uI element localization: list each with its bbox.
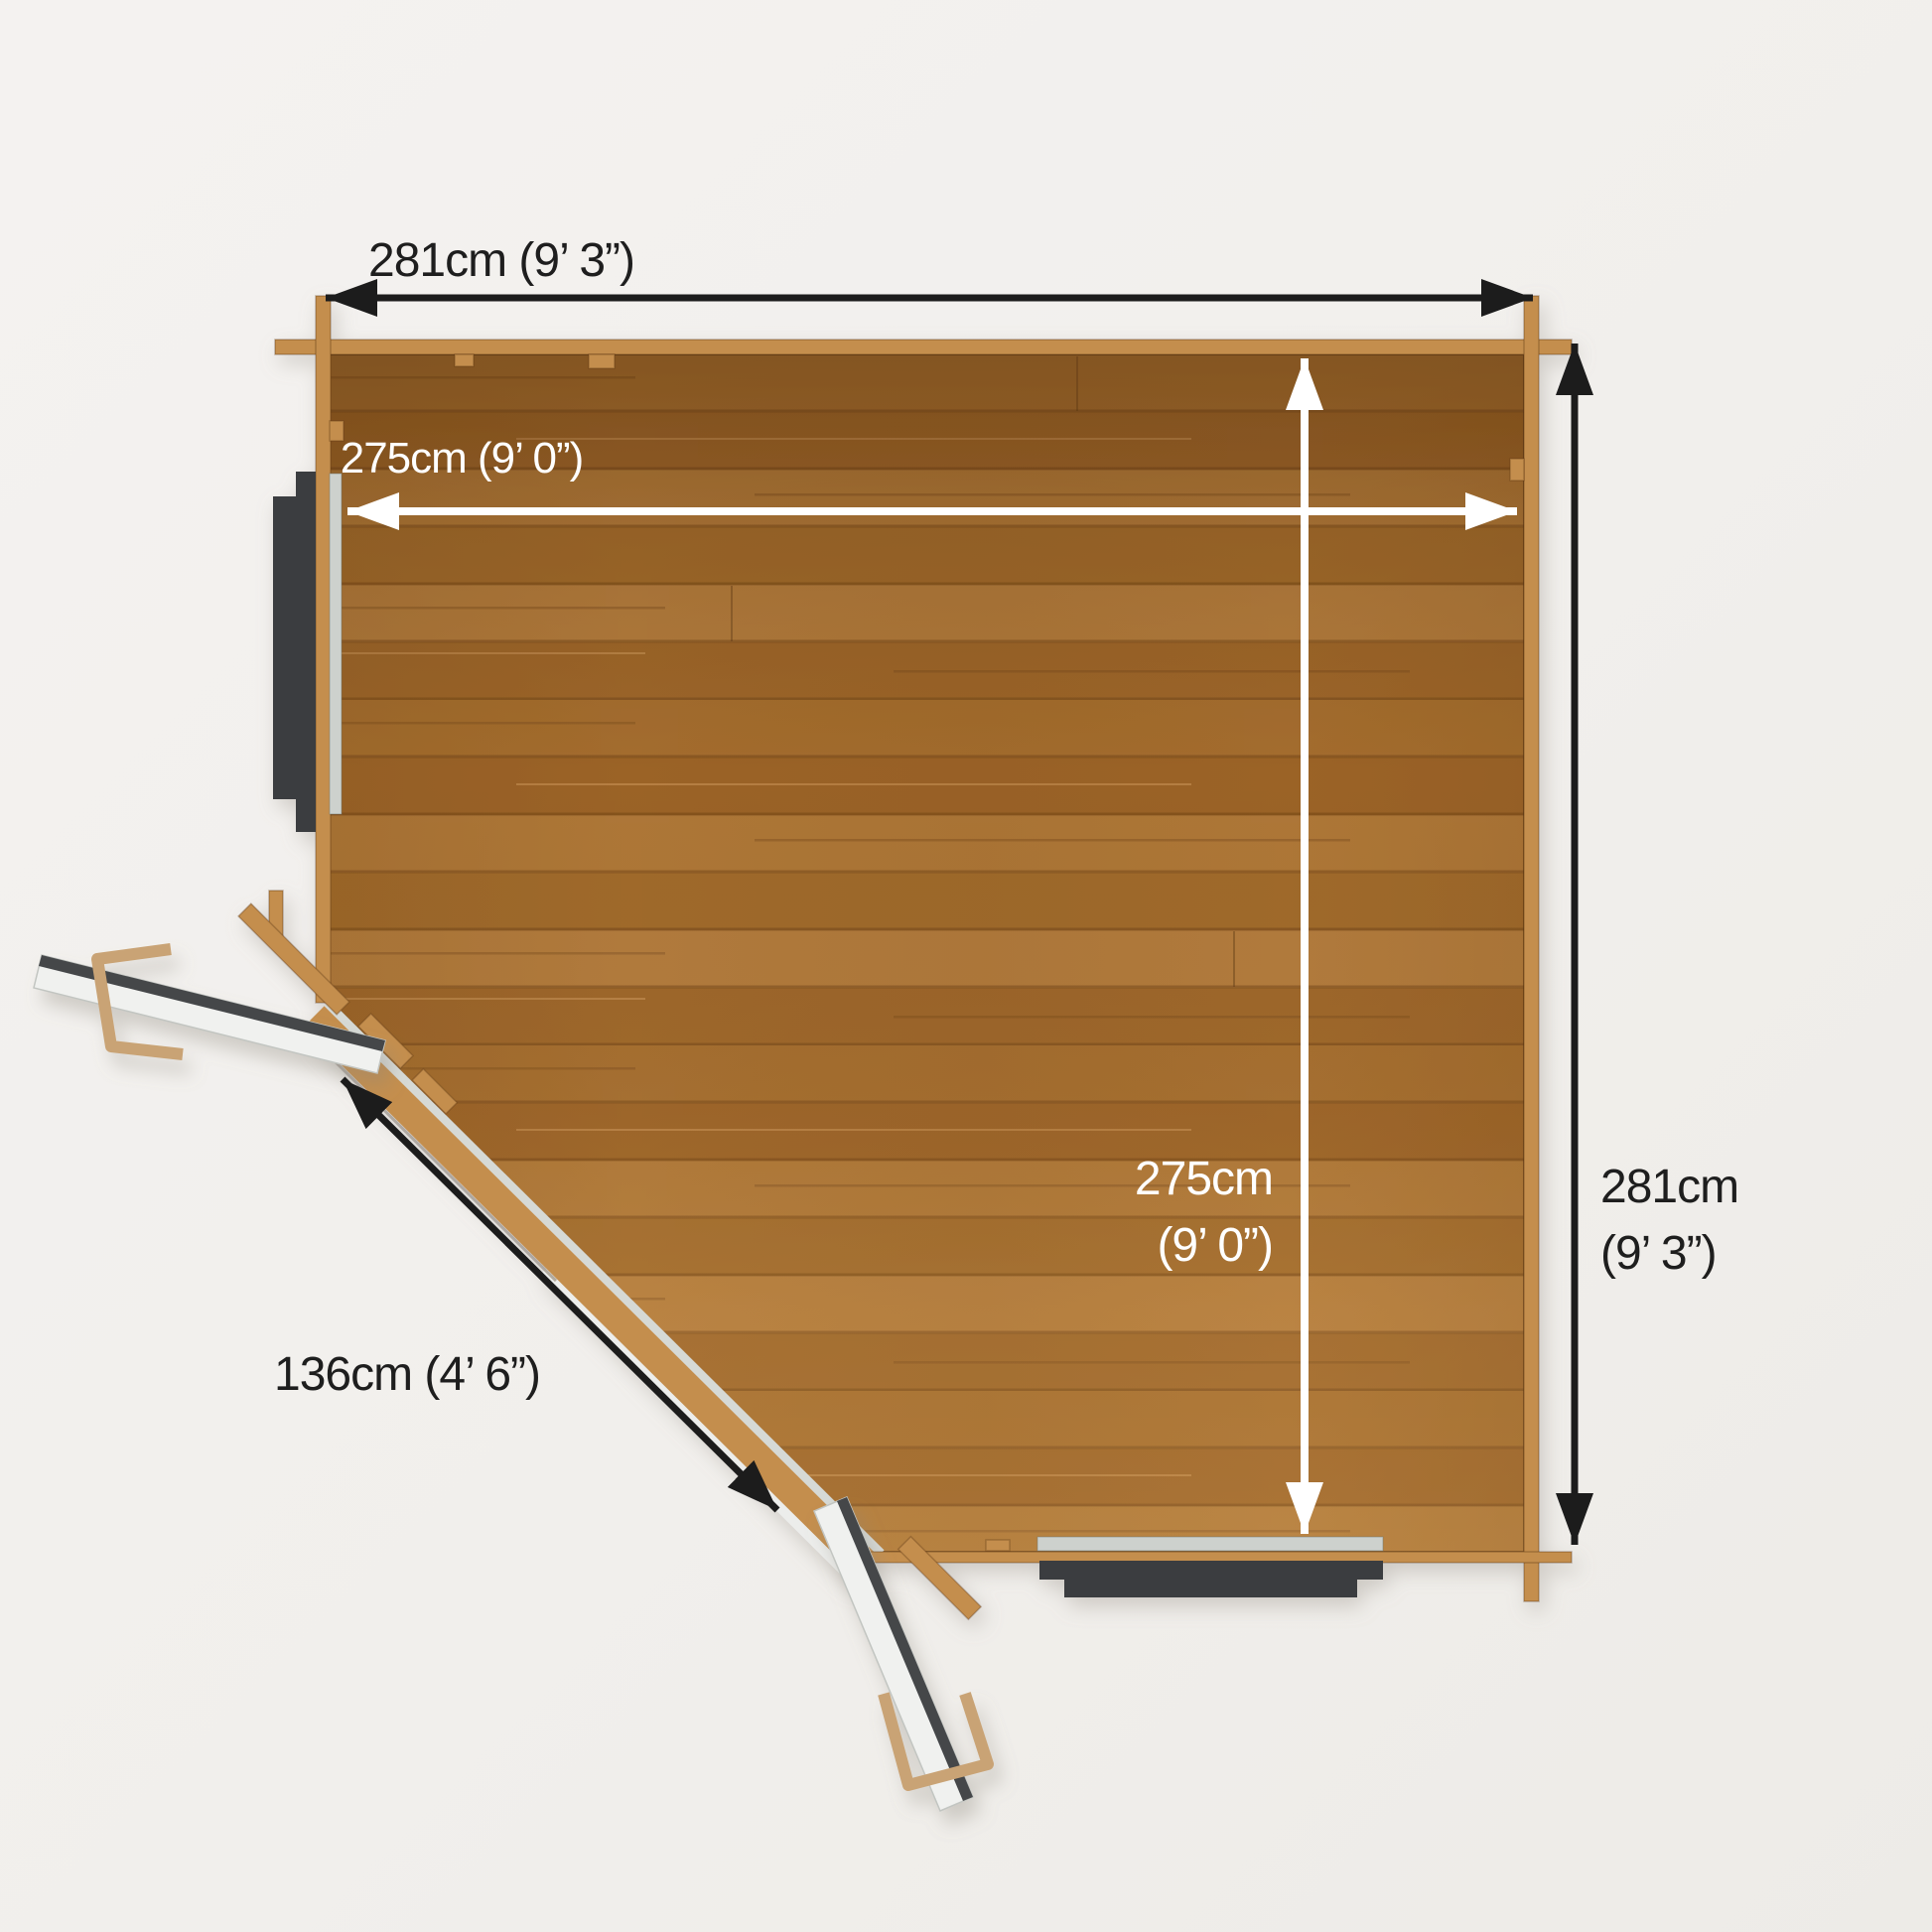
dim-label-inner-depth-line1: 275cm [1135,1153,1273,1205]
left-window-sill [330,474,342,814]
dim-label-outer-depth-line2: (9’ 3”) [1600,1227,1717,1280]
left-window-frame [296,472,316,832]
left-window-frame-outer [273,496,296,799]
bottom-window [1037,1537,1383,1597]
dim-label-outer-width: 281cm (9’ 3”) [368,234,634,287]
top-wall [275,340,1572,354]
floor-plan-diagram: 281cm (9’ 3”) 275cm (9’ 0”) 275cm (9’ 0”… [0,0,1932,1932]
floor-plan-page: 281cm (9’ 3”) 275cm (9’ 0”) 275cm (9’ 0”… [0,0,1932,1932]
dim-label-outer-depth-line1: 281cm [1600,1161,1738,1213]
right-wall [1524,296,1539,1601]
left-wall [316,296,331,1003]
bottom-window-sill [1037,1537,1383,1551]
dim-label-door-width: 136cm (4’ 6”) [274,1348,540,1401]
bottom-window-frame-outer [1064,1580,1357,1597]
dim-label-inner-depth-line2: (9’ 0”) [1157,1219,1273,1272]
left-window [273,472,342,832]
bottom-window-frame [1039,1561,1383,1580]
dim-label-inner-width: 275cm (9’ 0”) [341,434,584,483]
